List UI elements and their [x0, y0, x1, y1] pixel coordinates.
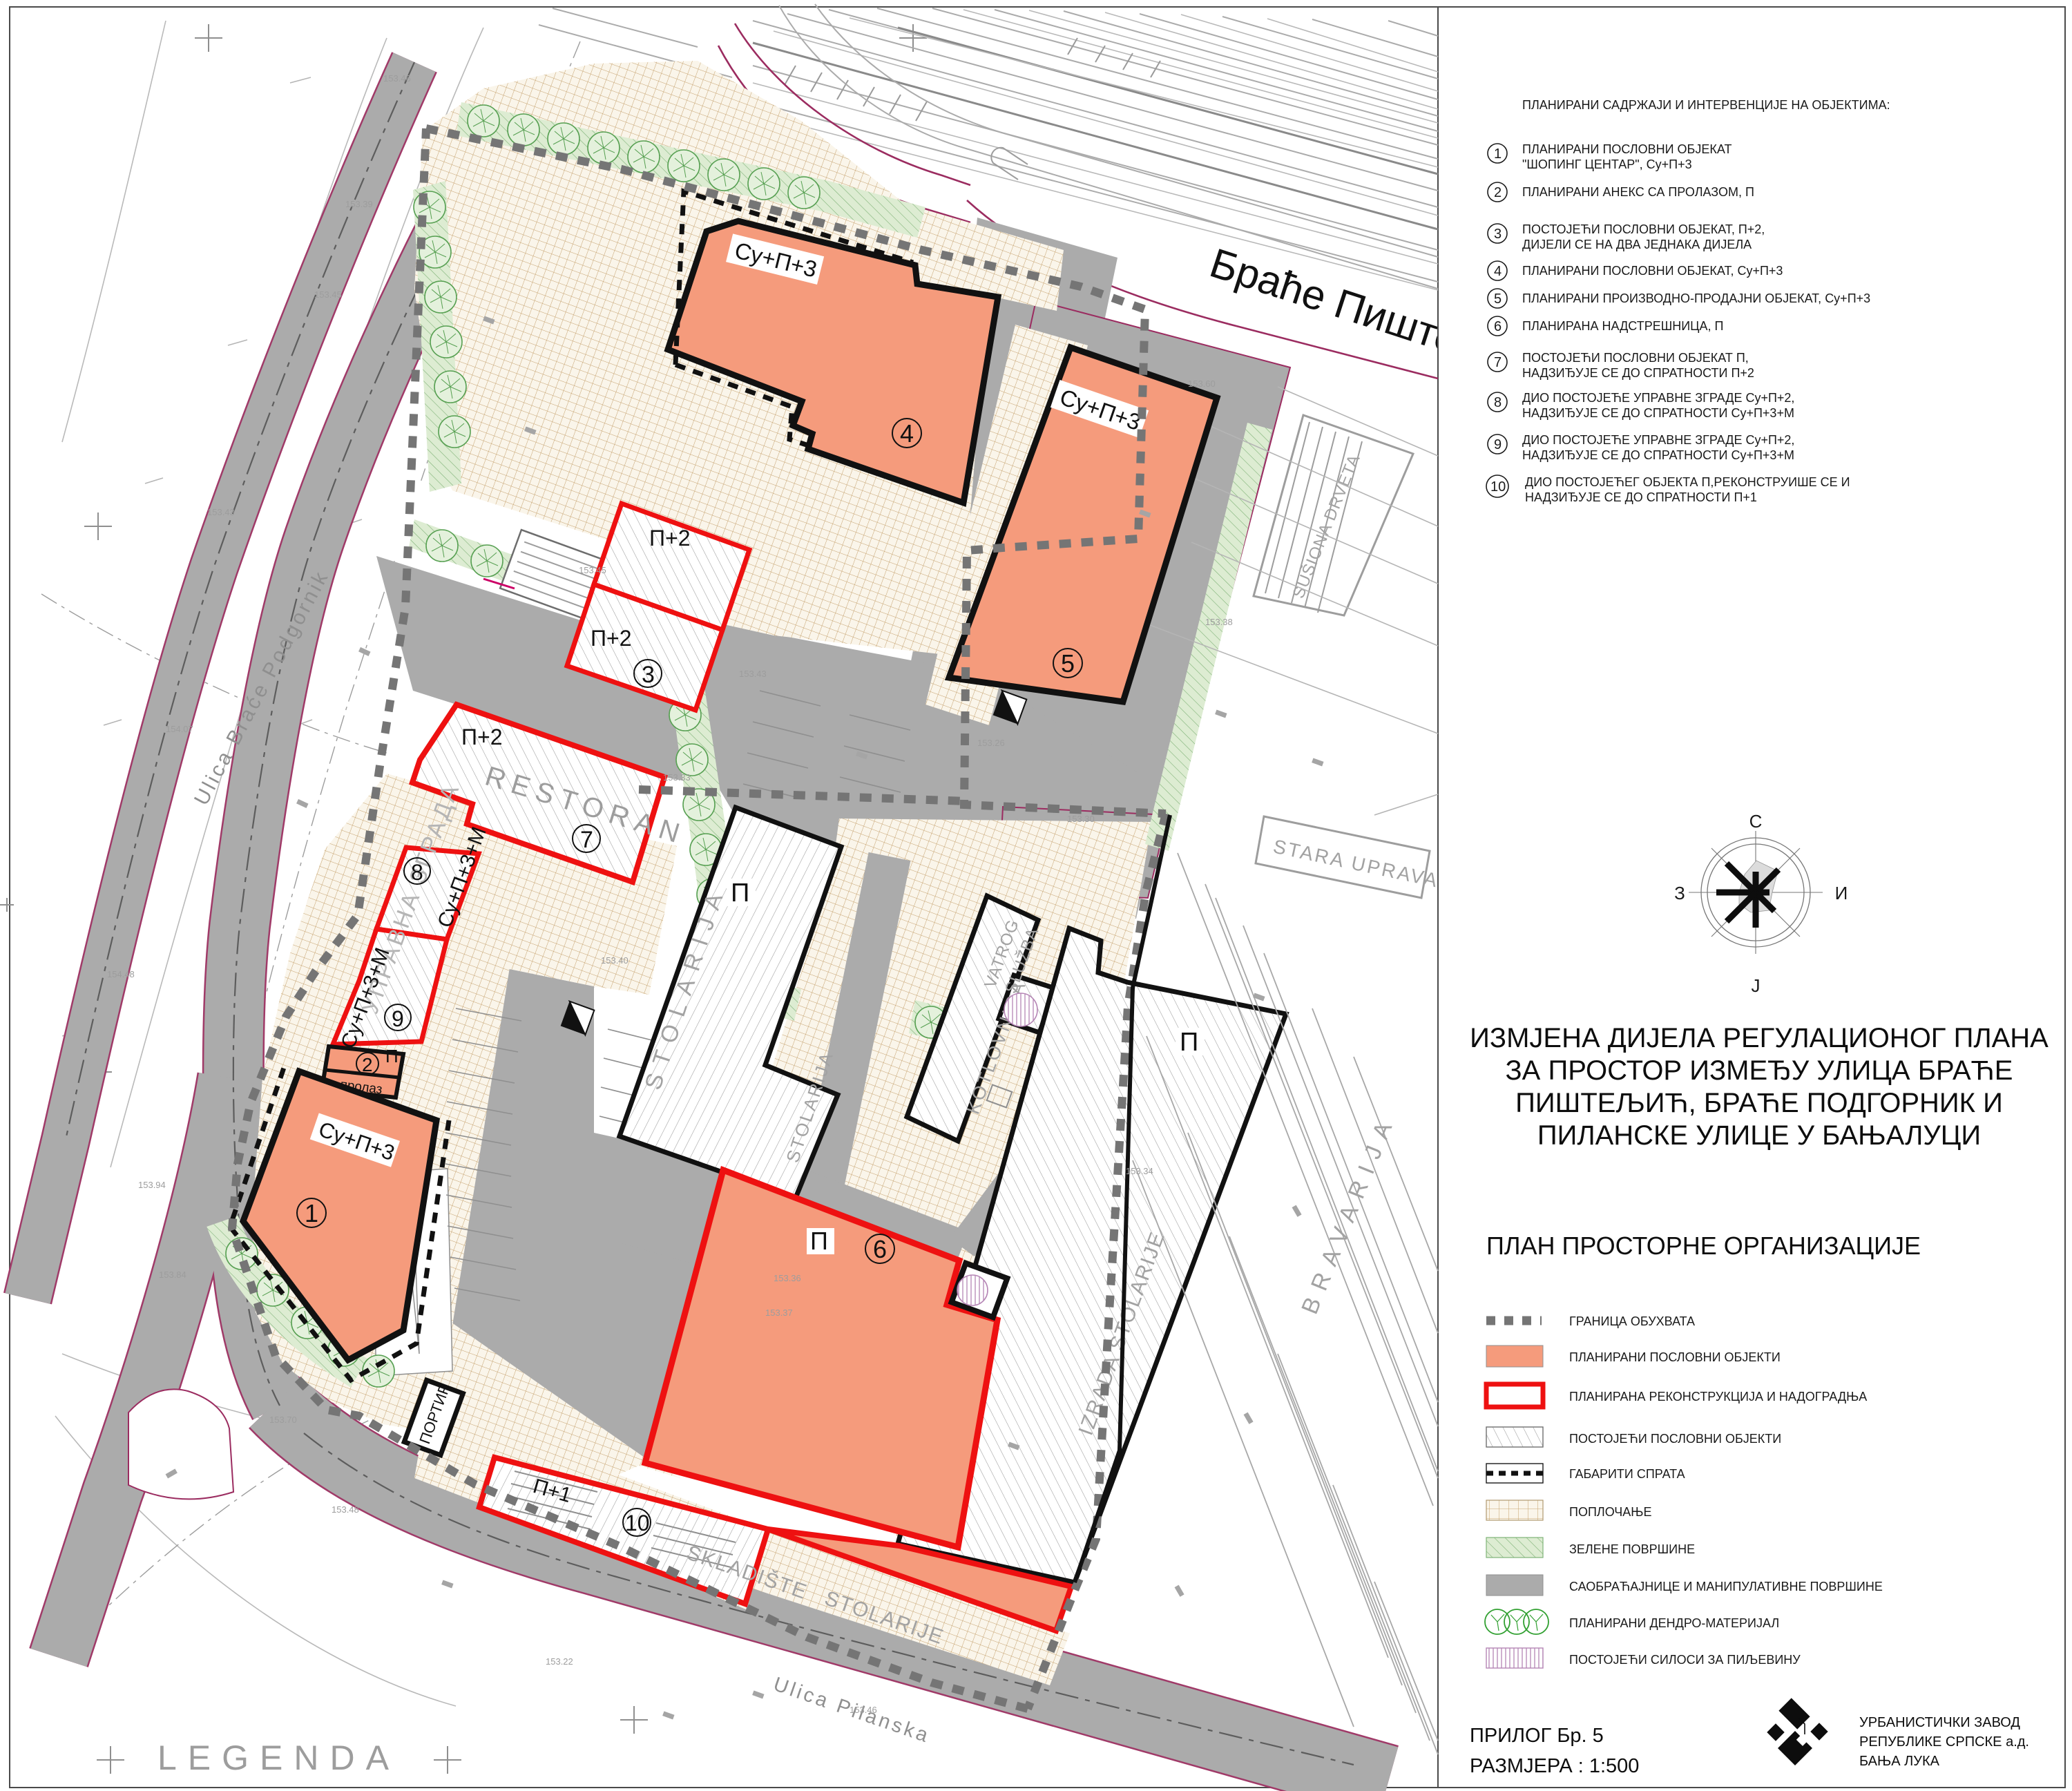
svg-text:153.39: 153.39 — [345, 199, 373, 209]
svg-text:154.07: 154.07 — [166, 724, 193, 734]
svg-text:153.30: 153.30 — [1067, 814, 1095, 824]
svg-text:153.34: 153.34 — [1126, 1166, 1153, 1176]
svg-text:НАДЗИЂУЈЕ СЕ ДО СПРАТНОСТИ П+2: НАДЗИЂУЈЕ СЕ ДО СПРАТНОСТИ П+2 — [1522, 366, 1754, 380]
svg-text:7: 7 — [580, 827, 593, 853]
svg-text:153.45: 153.45 — [314, 289, 342, 300]
svg-text:153.84: 153.84 — [159, 1270, 186, 1280]
svg-text:П+2: П+2 — [649, 526, 690, 550]
svg-text:ДИО ПОСТОЈЕЋЕ УПРАВНЕ ЗГРАДЕ С: ДИО ПОСТОЈЕЋЕ УПРАВНЕ ЗГРАДЕ Су+П+2, — [1522, 433, 1794, 447]
svg-text:З: З — [1674, 883, 1685, 903]
svg-text:ПИЛАНСКЕ УЛИЦЕ У БАЊАЛУЦИ: ПИЛАНСКЕ УЛИЦЕ У БАЊАЛУЦИ — [1537, 1120, 1981, 1151]
svg-text:154.48: 154.48 — [107, 969, 135, 979]
svg-text:10: 10 — [1490, 479, 1506, 495]
svg-text:Ј: Ј — [1752, 975, 1761, 996]
svg-text:ПЛАНИРАНИ ПОСЛОВНИ ОБЈЕКТИ: ПЛАНИРАНИ ПОСЛОВНИ ОБЈЕКТИ — [1569, 1350, 1781, 1364]
svg-text:5: 5 — [1061, 649, 1075, 678]
svg-text:С: С — [1749, 811, 1763, 832]
svg-text:9: 9 — [1494, 437, 1502, 452]
svg-text:П: П — [810, 1227, 828, 1255]
svg-text:БАЊА ЛУКА: БАЊА ЛУКА — [1859, 1754, 1940, 1769]
svg-text:3: 3 — [642, 662, 655, 688]
svg-text:П: П — [385, 1046, 399, 1066]
svg-text:153.38: 153.38 — [1205, 617, 1233, 627]
svg-text:5: 5 — [1494, 291, 1502, 307]
svg-text:8: 8 — [411, 860, 423, 885]
svg-text:П+2: П+2 — [461, 725, 502, 749]
svg-text:153.48: 153.48 — [332, 1504, 359, 1515]
svg-text:1: 1 — [1494, 146, 1502, 162]
svg-text:153.94: 153.94 — [138, 1180, 166, 1190]
svg-text:ПЛАНИРАНИ ПРОИЗВОДНО-ПРОДАЈНИ: ПЛАНИРАНИ ПРОИЗВОДНО-ПРОДАЈНИ ОБЈЕКАТ, С… — [1522, 291, 1870, 305]
svg-text:И: И — [1835, 883, 1848, 903]
svg-text:7: 7 — [1494, 355, 1502, 370]
svg-text:"ШОПИНГ ЦЕНТАР", Су+П+3: "ШОПИНГ ЦЕНТАР", Су+П+3 — [1522, 157, 1692, 171]
svg-text:ДИЈЕЛИ СЕ НА ДВА ЈЕДНАКА ДИЈЕЛ: ДИЈЕЛИ СЕ НА ДВА ЈЕДНАКА ДИЈЕЛА — [1522, 238, 1752, 251]
svg-text:ЗА ПРОСТОР ИЗМЕЂУ УЛИЦА БРАЋЕ: ЗА ПРОСТОР ИЗМЕЂУ УЛИЦА БРАЋЕ — [1506, 1055, 2013, 1086]
svg-text:153.46: 153.46 — [850, 1705, 877, 1715]
svg-text:10: 10 — [625, 1511, 650, 1535]
svg-text:153.40: 153.40 — [601, 955, 629, 966]
svg-text:153.43: 153.43 — [739, 669, 767, 679]
svg-text:153.36: 153.36 — [774, 1273, 801, 1283]
svg-text:ПОСТОЈЕЋИ СИЛОСИ ЗА ПИЉЕВИНУ: ПОСТОЈЕЋИ СИЛОСИ ЗА ПИЉЕВИНУ — [1569, 1653, 1801, 1667]
svg-text:153.70: 153.70 — [269, 1415, 297, 1425]
svg-text:4: 4 — [900, 419, 914, 448]
svg-text:2: 2 — [362, 1054, 373, 1075]
svg-text:6: 6 — [1494, 319, 1502, 334]
svg-text:3: 3 — [1494, 227, 1502, 242]
svg-text:ПОСТОЈЕЋИ ПОСЛОВНИ ОБЈЕКАТ, П+: ПОСТОЈЕЋИ ПОСЛОВНИ ОБЈЕКАТ, П+2, — [1522, 222, 1765, 236]
svg-text:НАДЗИЂУЈЕ СЕ ДО СПРАТНОСТИ П+1: НАДЗИЂУЈЕ СЕ ДО СПРАТНОСТИ П+1 — [1525, 490, 1757, 504]
svg-text:153.22: 153.22 — [546, 1656, 573, 1667]
svg-text:П: П — [1180, 1028, 1198, 1057]
svg-text:ПЛАНИРАНИ ДЕНДРО-МАТЕРИЈАЛ: ПЛАНИРАНИ ДЕНДРО-МАТЕРИЈАЛ — [1569, 1616, 1779, 1630]
svg-text:9: 9 — [392, 1006, 404, 1031]
svg-text:2: 2 — [1494, 185, 1502, 200]
svg-text:ГАБАРИТИ СПРАТА: ГАБАРИТИ СПРАТА — [1569, 1467, 1685, 1481]
svg-text:ПЛАН ПРОСТОРНЕ ОРГАНИЗАЦИЈЕ: ПЛАН ПРОСТОРНЕ ОРГАНИЗАЦИЈЕ — [1486, 1232, 1921, 1260]
svg-text:ДИО ПОСТОЈЕЋЕ УПРАВНЕ ЗГРАДЕ С: ДИО ПОСТОЈЕЋЕ УПРАВНЕ ЗГРАДЕ Су+П+2, — [1522, 391, 1794, 405]
svg-text:153.33: 153.33 — [663, 772, 691, 783]
svg-text:6: 6 — [873, 1235, 887, 1263]
svg-text:153.43: 153.43 — [207, 507, 235, 517]
svg-text:ПЛАНИРАНА НАДСТРЕШНИЦА, П: ПЛАНИРАНА НАДСТРЕШНИЦА, П — [1522, 319, 1723, 333]
svg-text:РАЗМЈЕРА : 1:500: РАЗМЈЕРА : 1:500 — [1470, 1755, 1639, 1777]
svg-text:153.60: 153.60 — [1188, 379, 1216, 389]
svg-text:ДИО ПОСТОЈЕЋЕГ ОБЈЕКТА П,РЕКОН: ДИО ПОСТОЈЕЋЕГ ОБЈЕКТА П,РЕКОНСТРУИШЕ СЕ… — [1525, 475, 1850, 489]
svg-text:ГРАНИЦА ОБУХВАТА: ГРАНИЦА ОБУХВАТА — [1569, 1314, 1695, 1328]
svg-text:ПЛАНИРАНА РЕКОНСТРУКЦИЈА И НАД: ПЛАНИРАНА РЕКОНСТРУКЦИЈА И НАДОГРАДЊА — [1569, 1390, 1867, 1404]
svg-text:ПЛАНИРАНИ ПОСЛОВНИ ОБЈЕКАТ, Су: ПЛАНИРАНИ ПОСЛОВНИ ОБЈЕКАТ, Су+П+3 — [1522, 264, 1783, 278]
svg-text:153.37: 153.37 — [765, 1308, 793, 1318]
svg-text:ПИШТЕЉИЋ, БРАЋЕ ПОДГОРНИК И: ПИШТЕЉИЋ, БРАЋЕ ПОДГОРНИК И — [1515, 1088, 2003, 1118]
svg-text:П: П — [731, 879, 749, 908]
svg-text:153.26: 153.26 — [977, 738, 1005, 748]
svg-text:ПОСТОЈЕЋИ ПОСЛОВНИ ОБЈЕКТИ: ПОСТОЈЕЋИ ПОСЛОВНИ ОБЈЕКТИ — [1569, 1432, 1781, 1446]
svg-text:УРБАНИСТИЧКИ ЗАВОД: УРБАНИСТИЧКИ ЗАВОД — [1859, 1715, 2020, 1730]
svg-text:САОБРАЋАЈНИЦЕ И МАНИПУЛАТИВНЕ: САОБРАЋАЈНИЦЕ И МАНИПУЛАТИВНЕ ПОВРШИНЕ — [1569, 1580, 1883, 1593]
svg-text:ПОСТОЈЕЋИ ПОСЛОВНИ ОБЈЕКАТ П,: ПОСТОЈЕЋИ ПОСЛОВНИ ОБЈЕКАТ П, — [1522, 351, 1749, 365]
svg-text:8: 8 — [1494, 395, 1502, 410]
svg-text:ПРИЛОГ Бр. 5: ПРИЛОГ Бр. 5 — [1470, 1725, 1604, 1747]
svg-text:153.45: 153.45 — [579, 565, 606, 575]
svg-text:ПЛАНИРАНИ САДРЖАЈИ И ИНТЕРВЕНЦ: ПЛАНИРАНИ САДРЖАЈИ И ИНТЕРВЕНЦИЈЕ НА ОБЈ… — [1522, 98, 1890, 112]
svg-text:П+2: П+2 — [591, 626, 631, 651]
svg-text:153.46: 153.46 — [383, 73, 411, 84]
svg-text:НАДЗИЂУЈЕ СЕ ДО СПРАТНОСТИ Су+: НАДЗИЂУЈЕ СЕ ДО СПРАТНОСТИ Су+П+3+М — [1522, 448, 1794, 462]
svg-text:4: 4 — [1494, 264, 1502, 279]
svg-text:1: 1 — [305, 1199, 318, 1227]
svg-text:LEGENDA: LEGENDA — [157, 1739, 400, 1777]
svg-text:РЕПУБЛИКЕ СРПСКЕ а.д.: РЕПУБЛИКЕ СРПСКЕ а.д. — [1859, 1734, 2029, 1750]
svg-text:ПЛАНИРАНИ ПОСЛОВНИ ОБЈЕКАТ: ПЛАНИРАНИ ПОСЛОВНИ ОБЈЕКАТ — [1522, 142, 1732, 156]
svg-text:ПОПЛОЧАЊЕ: ПОПЛОЧАЊЕ — [1569, 1505, 1652, 1519]
svg-text:ИЗМЈЕНА ДИЈЕЛА РЕГУЛАЦИОНОГ ПЛ: ИЗМЈЕНА ДИЈЕЛА РЕГУЛАЦИОНОГ ПЛАНА — [1470, 1023, 2049, 1053]
svg-text:ПЛАНИРАНИ АНЕКС СА ПРОЛАЗОМ, П: ПЛАНИРАНИ АНЕКС СА ПРОЛАЗОМ, П — [1522, 185, 1754, 199]
svg-text:ЗЕЛЕНЕ ПОВРШИНЕ: ЗЕЛЕНЕ ПОВРШИНЕ — [1569, 1542, 1695, 1556]
svg-text:НАДЗИЂУЈЕ СЕ ДО СПРАТНОСТИ Су+: НАДЗИЂУЈЕ СЕ ДО СПРАТНОСТИ Су+П+3+М — [1522, 406, 1794, 420]
